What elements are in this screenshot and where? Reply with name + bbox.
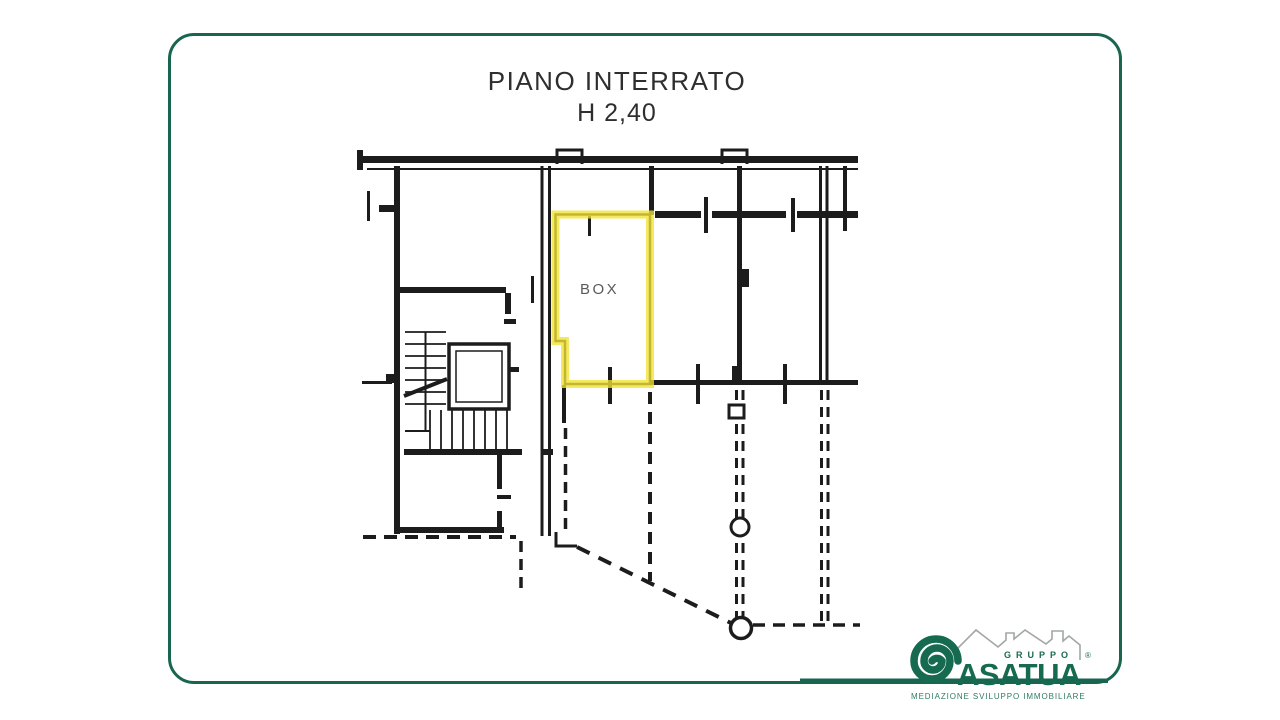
title-block: PIANO INTERRATO H 2,40 [317, 66, 917, 127]
logo-tagline: MEDIAZIONE SVILUPPO IMMOBILIARE [911, 692, 1086, 701]
page-subtitle: H 2,40 [317, 99, 917, 127]
floor-plan-drawing: BOX [300, 140, 880, 650]
floor-plan-pillars [729, 405, 752, 639]
floor-plan-dashed-lines [363, 385, 860, 626]
agency-logo: GRUPPO ASATUA ® MEDIAZIONE SVILUPPO IMMO… [780, 612, 1130, 712]
box-room-label: BOX [580, 281, 619, 298]
logo-spiral-icon [914, 639, 958, 679]
logo-registered-mark: ® [1085, 651, 1091, 660]
box-room-wall-outline [556, 215, 651, 385]
page-title: PIANO INTERRATO [317, 66, 917, 96]
page-root: { "title": { "line1": "PIANO INTERRATO",… [0, 0, 1280, 720]
logo-brand-text: ASATUA [957, 657, 1081, 692]
floor-plan-walls [357, 150, 858, 546]
box-room-highlight [556, 215, 651, 385]
